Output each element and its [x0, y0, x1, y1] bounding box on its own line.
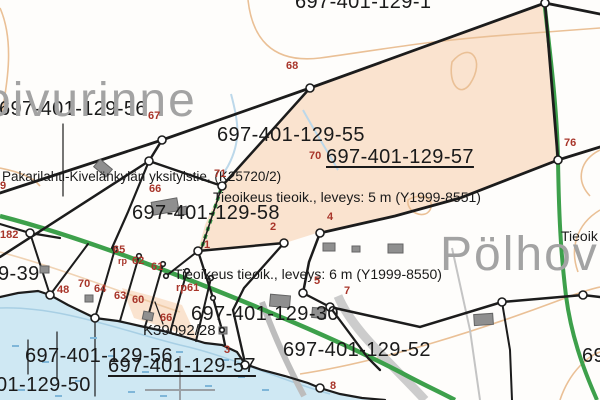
parcel-label-129-57-bottom: 697-401-129-57 — [108, 356, 256, 377]
point-number-5: 5 — [314, 276, 320, 288]
point-marker-rp: rp — [118, 257, 127, 266]
point-marker-rp61: rp61 — [176, 283, 199, 295]
easement-label-5m: Tieoikeus tieoik., leveys: 5 m (Y1999-85… — [213, 190, 481, 205]
document-number-label: K39092/28 — [143, 323, 216, 339]
point-number-70-lower: 70 — [78, 279, 90, 291]
point-number-66-upper: 66 — [149, 184, 161, 196]
point-number-8: 8 — [330, 381, 336, 393]
point-number-62: 62 — [132, 256, 144, 268]
point-number-66-lower: 66 — [160, 313, 172, 325]
parcel-label-129-50-partial: 01-129-50 — [0, 375, 91, 396]
point-number-63: 63 — [114, 291, 126, 303]
easement-label-6m: Tieoikeus tieoik., leveys: 6 m (Y1999-85… — [174, 267, 442, 282]
parcel-label-129-52: 697-401-129-52 — [283, 340, 431, 361]
parcel-label-129-39-partial: 9-39 — [0, 264, 40, 285]
point-number-48: 48 — [57, 285, 69, 297]
road-right-green — [544, 0, 597, 400]
parcel-label-129-58: 697-401-129-58 — [132, 203, 280, 224]
private-road-name-label: Pakarilahti-Kivelänkylän yksityistie, (K… — [2, 170, 281, 184]
place-name-polhov: Pölhov — [440, 230, 599, 280]
place-name-oivurinne: oivurinne — [0, 76, 197, 126]
parcel-label-right-edge-partial: 69 — [582, 346, 600, 367]
point-number-64: 64 — [94, 284, 106, 296]
point-number-1: 1 — [204, 240, 210, 252]
cadastral-map[interactable]: 697-401-129-1697-401-129-56697-401-129-5… — [0, 0, 600, 400]
point-number-182: 182 — [0, 230, 18, 242]
point-number-60: 60 — [132, 295, 144, 307]
point-number-9-partial: 9 — [0, 181, 6, 193]
point-number-4: 4 — [327, 212, 333, 224]
point-number-2: 2 — [270, 222, 276, 234]
point-number-65: 65 — [113, 245, 125, 257]
point-number-70-upper: 70 — [309, 151, 321, 163]
parcel-label-129-57-top: 697-401-129-57 — [326, 147, 474, 168]
parcel-label-129-55: 697-401-129-55 — [217, 125, 365, 146]
point-number-67: 67 — [148, 111, 160, 123]
point-number-7: 7 — [344, 286, 350, 298]
point-number-3: 3 — [224, 345, 230, 357]
point-number-71: 71 — [214, 169, 226, 181]
parcel-label-129-1: 697-401-129-1 — [295, 0, 431, 13]
point-number-68: 68 — [286, 61, 298, 73]
point-number-61: 61 — [151, 262, 163, 274]
point-number-76: 76 — [564, 138, 576, 150]
